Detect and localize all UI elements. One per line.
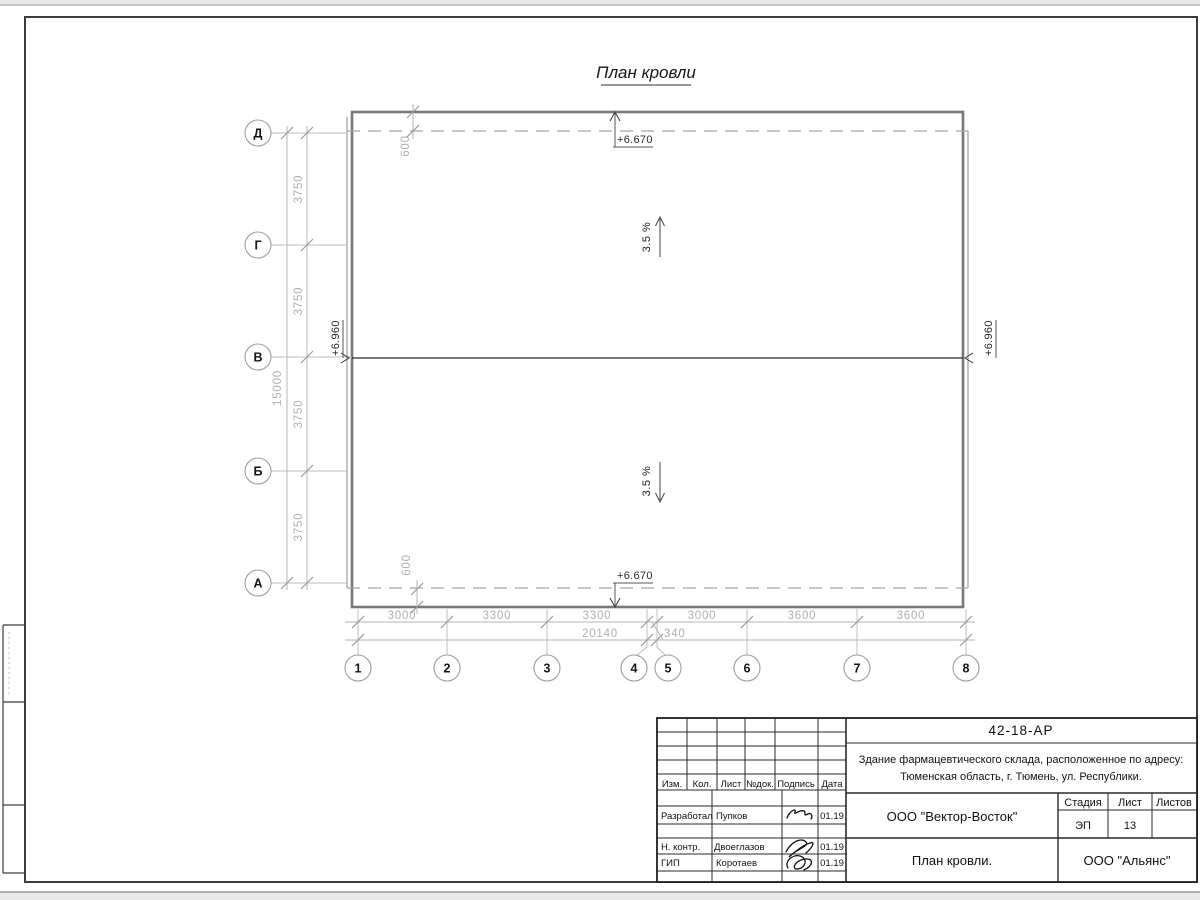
stage-value: ЭП [1075,820,1091,832]
axis-marker-a: А [245,570,271,596]
axis-label-4: 4 [631,662,638,676]
dim-bottom-2: 3300 [483,610,512,622]
axis-label-6: 6 [744,662,751,676]
col-podpis: Подпись [777,779,815,790]
sheets-label: Листов [1156,797,1192,809]
elevation-top-label: +6.670 [617,134,653,146]
dim-left-2: 3750 [293,287,305,316]
dim-left-1: 3750 [293,175,305,204]
signer-date-3: 01.19 [820,858,844,869]
signer-date-2: 01.19 [820,842,844,853]
axis-marker-3: 3 [534,655,560,681]
axis-label-3: 3 [544,662,551,676]
signer-role-3: ГИП [661,858,680,869]
axis-marker-2: 2 [434,655,460,681]
axis-label-v: В [253,351,262,365]
slope-upper-label: 3.5 % [641,222,653,253]
project-name-line2: Тюменская область, г. Тюмень, ул. Респуб… [900,771,1142,783]
sheet-title: План кровли. [912,853,992,868]
slope-lower-label: 3.5 % [641,466,653,497]
title-block: Изм. Кол. Лист №док. Подпись Дата Разраб… [657,718,1197,882]
dim-bottom-total: 20140 [582,628,618,640]
axis-marker-8: 8 [953,655,979,681]
dim-bottom-4: 3000 [688,610,717,622]
dim-bottom-6: 3600 [897,610,926,622]
sheet-canvas: План кровли [0,0,1200,900]
axis-marker-d: Д [245,120,271,146]
col-izm: Изм. [662,779,682,790]
signer-role-1: Разработал [661,811,713,822]
dim-left-total: 15000 [272,370,284,406]
axis-marker-g: Г [245,232,271,258]
axis-label-a: А [253,577,262,591]
col-ndok: №док. [746,779,774,790]
axis-marker-4: 4 [621,655,647,681]
elevation-left-label: +6.960 [330,320,342,356]
dim-left-4: 3750 [293,513,305,542]
stage-label: Стадия [1064,797,1102,809]
axis-marker-b: Б [245,458,271,484]
customer-org: ООО "Альянс" [1084,853,1171,868]
drawing-sheet: { "sheet": { "drawing_title": "План кров… [0,0,1200,900]
col-kol: Кол. [693,779,712,790]
axis-marker-1: 1 [345,655,371,681]
overhang-bottom-label: 600 [401,554,413,576]
designer-org: ООО "Вектор-Восток" [887,809,1018,824]
axis-label-b: Б [254,465,263,479]
sheet-label: Лист [1118,797,1142,809]
col-list: Лист [721,779,742,790]
axis-marker-6: 6 [734,655,760,681]
signer-date-1: 01.19 [820,811,844,822]
axis-marker-v: В [245,344,271,370]
axis-label-d: Д [254,127,263,141]
overhang-top-label: 600 [400,135,412,157]
elevation-right-label: +6.960 [983,320,995,356]
dim-bottom-3: 3300 [583,610,612,622]
plan-title: План кровли [596,63,696,82]
axis-marker-5: 5 [655,655,681,681]
col-data: Дата [821,779,843,790]
axis-label-1: 1 [355,662,362,676]
doc-code: 42-18-АР [988,723,1053,738]
signer-name-2: Двоеглазов [714,842,765,853]
dim-bottom-small: 340 [664,628,686,640]
project-name-line1: Здание фармацевтического склада, располо… [859,754,1184,766]
elevation-bottom-label: +6.670 [617,570,653,582]
signer-role-2: Н. контр. [661,842,700,853]
axis-label-7: 7 [854,662,861,676]
signer-name-1: Пупков [716,811,747,822]
axis-label-5: 5 [665,662,672,676]
dim-bottom-5: 3600 [788,610,817,622]
axis-label-g: Г [254,239,261,253]
dim-left-3: 3750 [293,400,305,429]
axis-label-2: 2 [444,662,451,676]
axis-marker-7: 7 [844,655,870,681]
axis-label-8: 8 [963,662,970,676]
signer-name-3: Коротаев [716,858,757,869]
dim-bottom-1: 3000 [388,610,417,622]
sheet-number: 13 [1124,820,1136,832]
